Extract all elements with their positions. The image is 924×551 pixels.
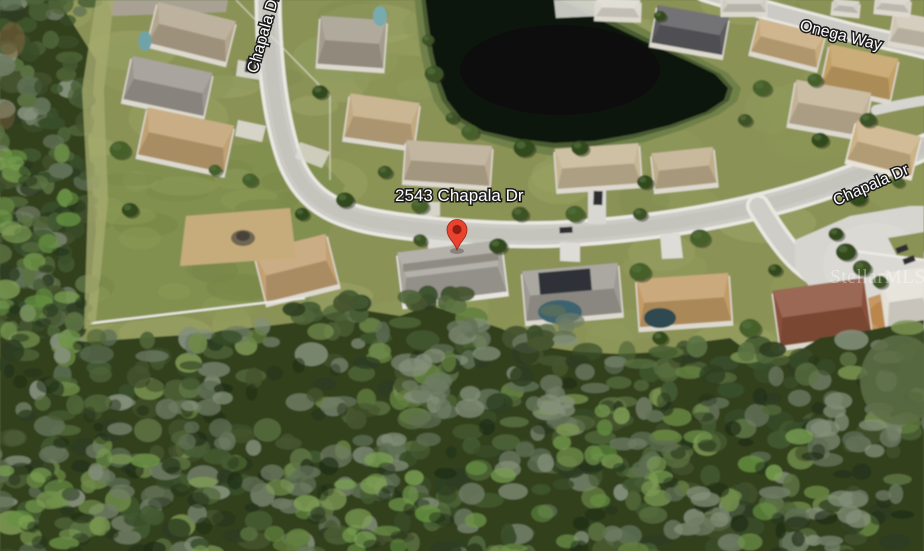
svg-text:StellarMLS: StellarMLS: [830, 267, 924, 288]
svg-text:2543 Chapala Dr: 2543 Chapala Dr: [395, 186, 524, 205]
